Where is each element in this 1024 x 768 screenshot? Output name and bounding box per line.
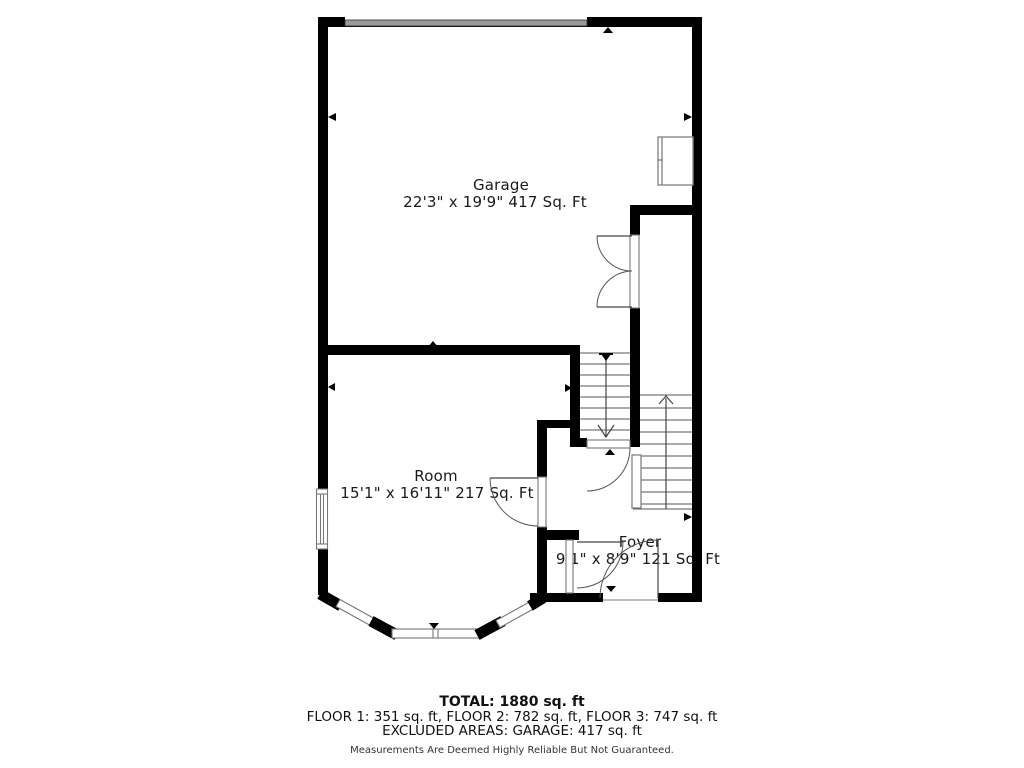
disclaimer-text: Measurements Are Deemed Highly Reliable …	[0, 745, 1024, 756]
down-arrowhead	[598, 425, 614, 437]
floor-plan-drawing	[0, 0, 1024, 768]
stairs-down	[580, 353, 630, 437]
garage-dimensions: 22'3" x 19'9" 417 Sq. Ft	[403, 193, 587, 211]
garage-label: Garage	[473, 176, 529, 194]
floor-plan-page: Garage 22'3" x 19'9" 417 Sq. Ft Room 15'…	[0, 0, 1024, 768]
stair-railing	[632, 455, 641, 508]
foyer-dimensions: 9'1" x 8'9" 121 Sq. Ft	[556, 550, 720, 568]
excluded-areas-text: EXCLUDED AREAS: GARAGE: 417 sq. ft	[0, 723, 1024, 739]
garage-double-door	[597, 235, 639, 308]
stair-door	[587, 440, 630, 491]
stairs-up	[632, 395, 692, 509]
room-label: Room	[414, 467, 458, 485]
bay-window	[320, 594, 543, 638]
garage-door	[345, 17, 587, 26]
walls	[318, 17, 702, 602]
window-left-wall	[317, 489, 328, 549]
foyer-label: Foyer	[619, 533, 662, 551]
stair-start-marker	[601, 354, 611, 361]
up-arrowhead	[659, 396, 673, 404]
total-area-text: TOTAL: 1880 sq. ft	[0, 694, 1024, 710]
utility-box	[658, 137, 693, 185]
room-dimensions: 15'1" x 16'11" 217 Sq. Ft	[340, 484, 534, 502]
